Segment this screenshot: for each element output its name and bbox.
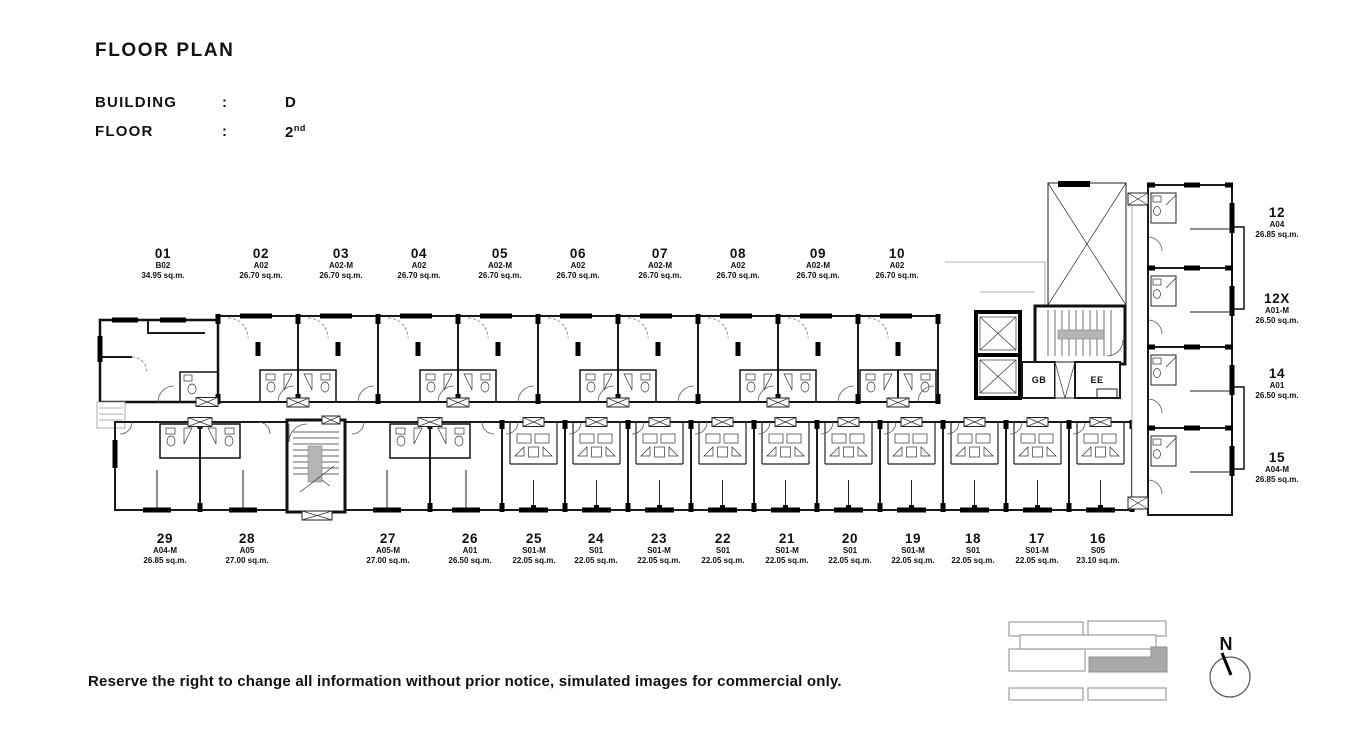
elevator-core xyxy=(945,183,1126,398)
key-plan xyxy=(1009,621,1167,700)
unit-label-29: 29A04-M26.85 sq.m. xyxy=(143,531,186,565)
unit-label-07: 07A02-M26.70 sq.m. xyxy=(638,246,681,280)
unit-label-23: 23S01-M22.05 sq.m. xyxy=(637,531,680,565)
unit-label-06: 06A0226.70 sq.m. xyxy=(556,246,599,280)
unit-label-04: 04A0226.70 sq.m. xyxy=(397,246,440,280)
unit-label-21: 21S01-M22.05 sq.m. xyxy=(765,531,808,565)
building-value: D xyxy=(285,94,296,111)
top-wing xyxy=(216,314,941,407)
gb-room-label: GB xyxy=(1032,375,1047,385)
unit-label-08: 08A0226.70 sq.m. xyxy=(716,246,759,280)
unit-label-20: 20S0122.05 sq.m. xyxy=(828,531,871,565)
unit-label-22: 22S0122.05 sq.m. xyxy=(701,531,744,565)
unit-label-10: 10A0226.70 sq.m. xyxy=(875,246,918,280)
building-label: BUILDING xyxy=(95,94,177,111)
disclaimer-text: Reserve the right to change all informat… xyxy=(88,673,842,690)
right-wing xyxy=(1128,183,1244,516)
key-plan-highlight xyxy=(1089,647,1167,672)
floor-label: FLOOR xyxy=(95,123,154,140)
unit-label-16: 16S0523.10 sq.m. xyxy=(1076,531,1119,565)
floor-plan-drawing xyxy=(0,0,1352,738)
unit-label-28: 28A0527.00 sq.m. xyxy=(225,531,268,565)
unit-label-26: 26A0126.50 sq.m. xyxy=(448,531,491,565)
unit-label-15: 15A04-M26.85 sq.m. xyxy=(1255,450,1298,484)
unit-label-24: 24S0122.05 sq.m. xyxy=(574,531,617,565)
unit-label-17: 17S01-M22.05 sq.m. xyxy=(1015,531,1058,565)
unit-label-25: 25S01-M22.05 sq.m. xyxy=(512,531,555,565)
unit-label-09: 09A02-M26.70 sq.m. xyxy=(796,246,839,280)
page-title: FLOOR PLAN xyxy=(95,40,235,62)
floor-value: 2nd xyxy=(285,123,306,141)
unit-label-12: 12A0426.85 sq.m. xyxy=(1255,205,1298,239)
building-colon: : xyxy=(222,94,228,111)
ee-room-label: EE xyxy=(1090,375,1103,385)
unit-label-05: 05A02-M26.70 sq.m. xyxy=(478,246,521,280)
bottom-wing-right xyxy=(500,418,1135,513)
floor-plan-page: FLOOR PLAN BUILDING : D FLOOR : 2nd 01B0… xyxy=(0,0,1352,738)
stairwell xyxy=(287,416,345,520)
north-arrow xyxy=(1210,653,1250,697)
unit-label-03: 03A02-M26.70 sq.m. xyxy=(319,246,362,280)
unit-label-19: 19S01-M22.05 sq.m. xyxy=(891,531,934,565)
unit-label-02: 02A0226.70 sq.m. xyxy=(239,246,282,280)
unit-label-12x: 12XA01-M26.50 sq.m. xyxy=(1255,291,1298,325)
unit-label-27: 27A05-M27.00 sq.m. xyxy=(366,531,409,565)
unit-label-14: 14A0126.50 sq.m. xyxy=(1255,366,1298,400)
unit-label-18: 18S0122.05 sq.m. xyxy=(951,531,994,565)
north-label: N xyxy=(1220,634,1233,655)
unit-label-01: 01B0234.95 sq.m. xyxy=(141,246,184,280)
floor-colon: : xyxy=(222,123,228,140)
unit-01-block xyxy=(97,320,218,428)
